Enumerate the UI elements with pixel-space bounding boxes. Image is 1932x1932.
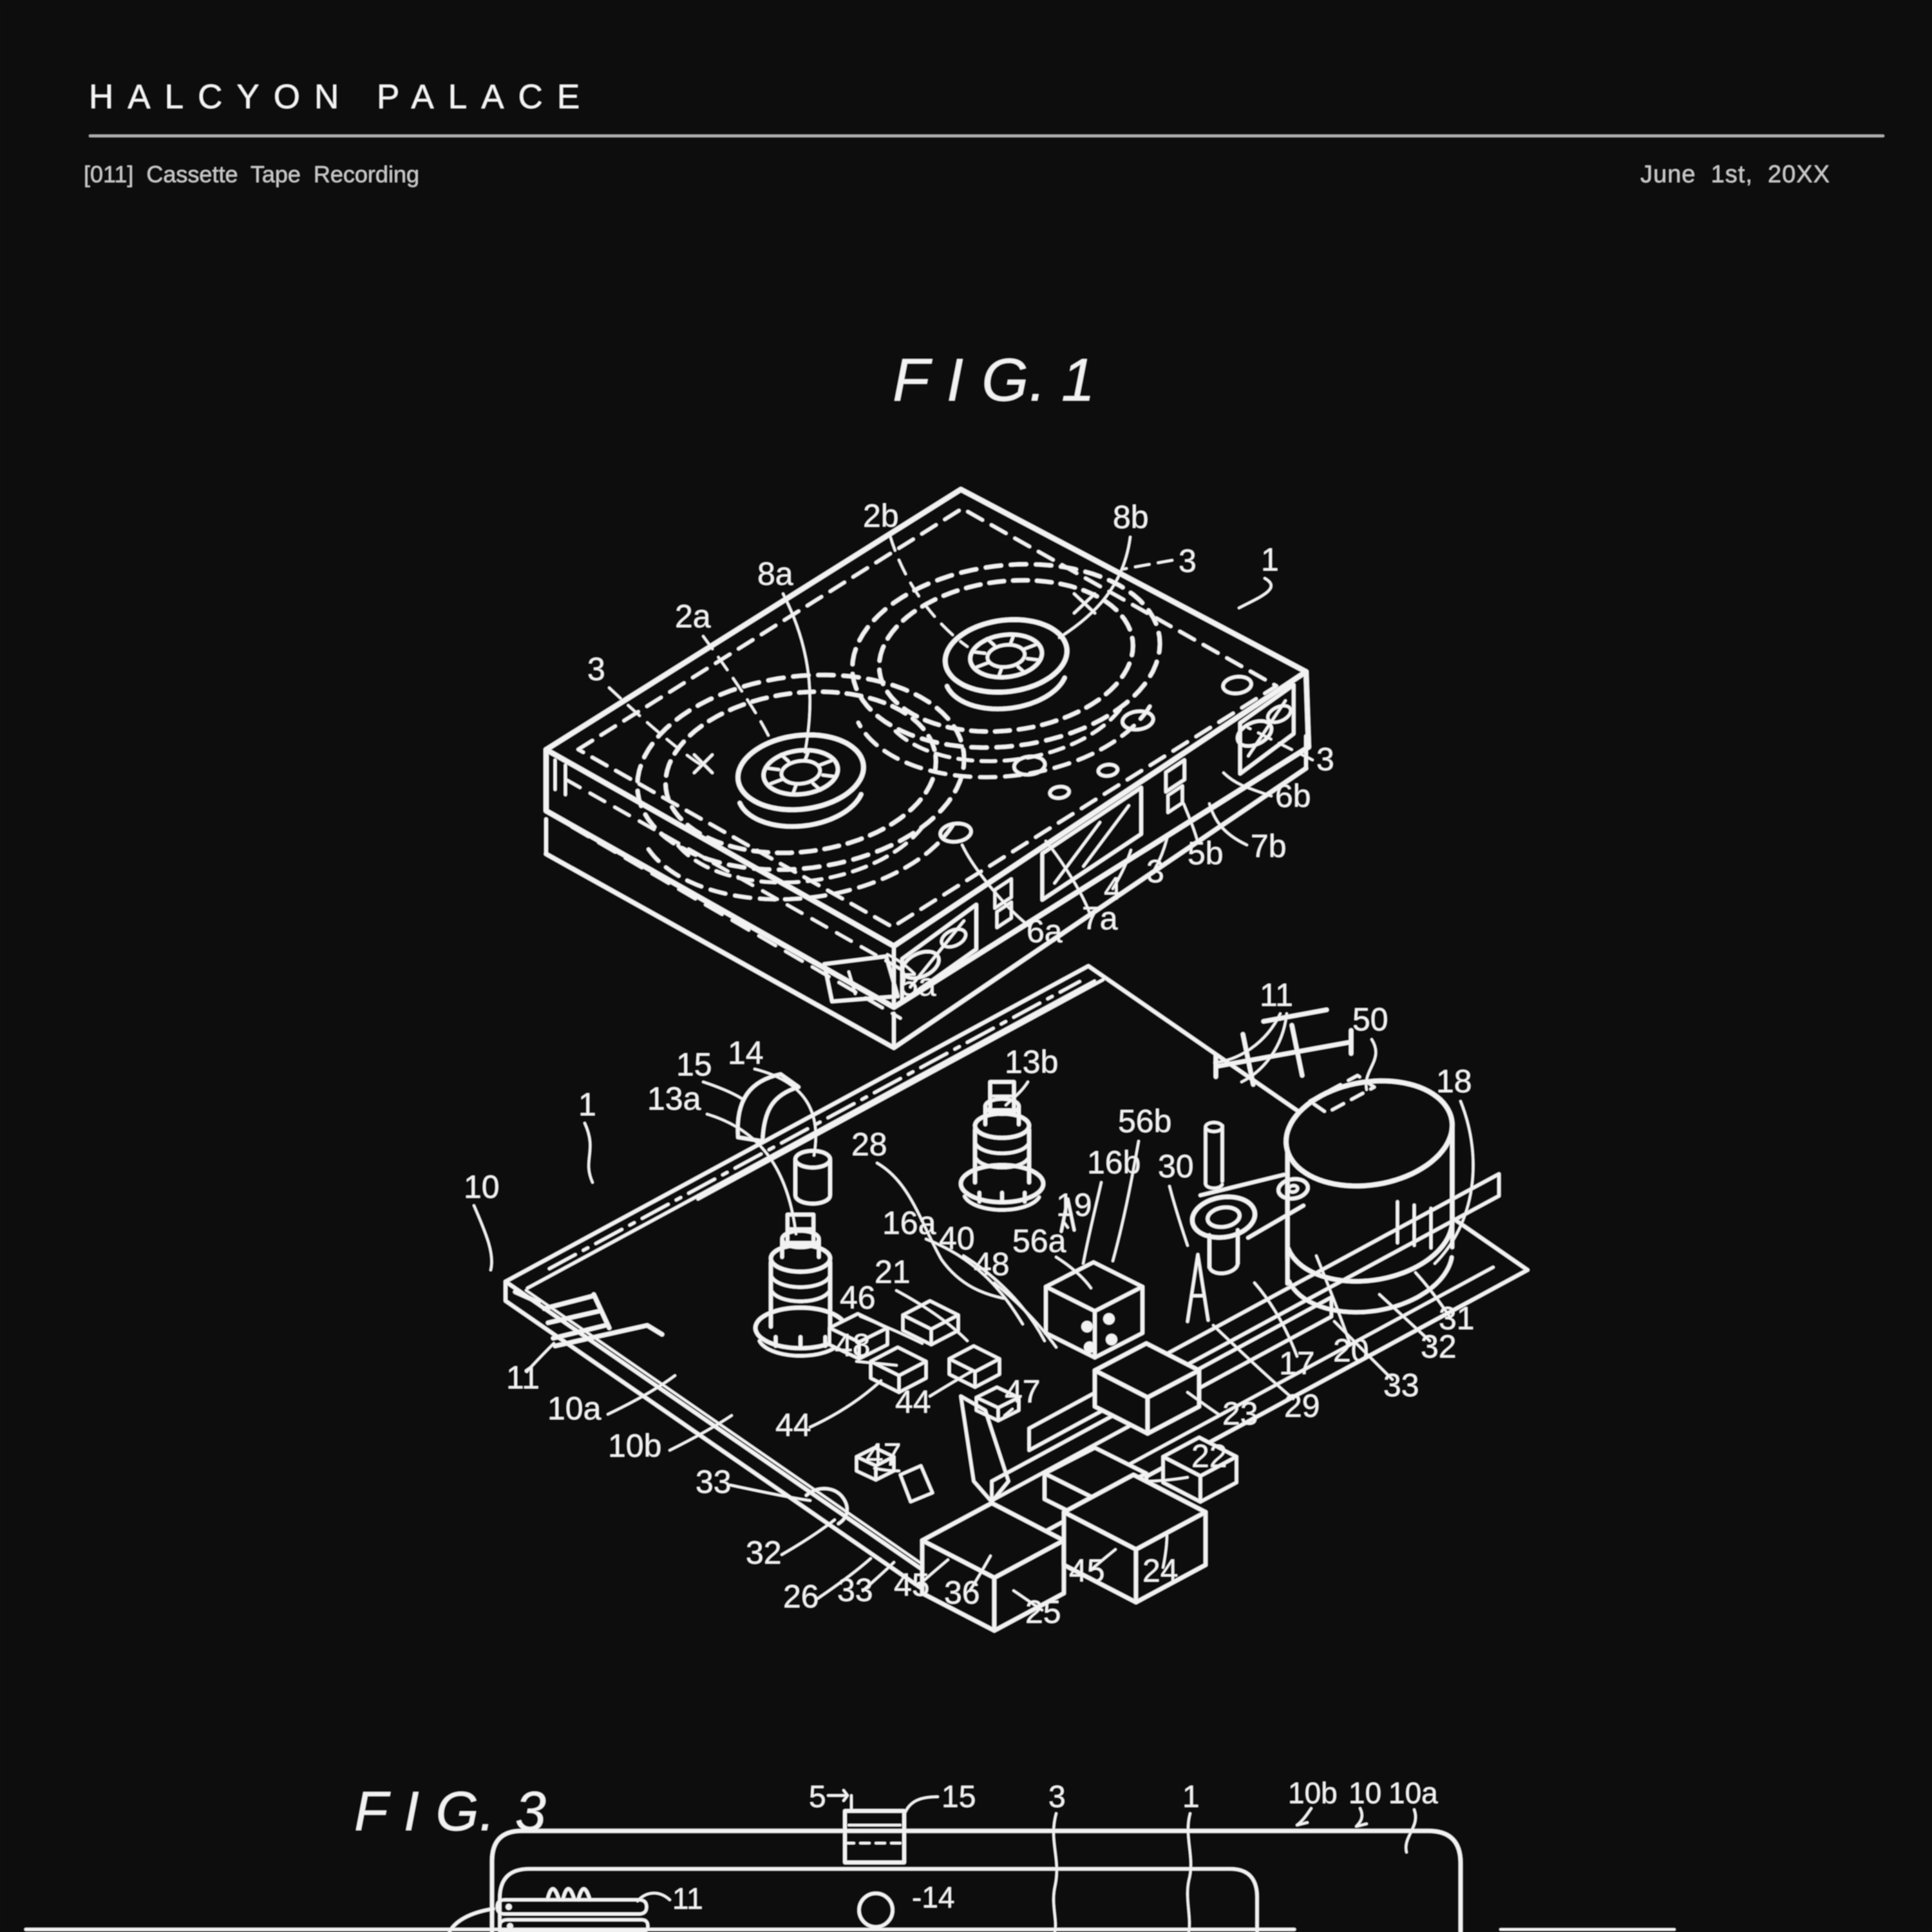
svg-text:33: 33 — [696, 1464, 732, 1500]
svg-text:3: 3 — [1316, 741, 1334, 777]
svg-text:18: 18 — [1436, 1063, 1472, 1099]
svg-text:22: 22 — [1191, 1438, 1227, 1474]
svg-text:HALCYON PALACE: HALCYON PALACE — [89, 78, 594, 116]
svg-text:1: 1 — [1261, 542, 1279, 578]
svg-text:48: 48 — [835, 1327, 871, 1363]
svg-text:17: 17 — [1279, 1345, 1315, 1381]
svg-text:[011] Cassette Tape Recordi: [011] Cassette Tape Recording — [84, 161, 419, 187]
svg-text:3: 3 — [587, 651, 605, 687]
svg-text:2b: 2b — [863, 498, 899, 534]
svg-text:10: 10 — [1349, 1776, 1381, 1810]
svg-text:50: 50 — [1352, 1001, 1388, 1037]
svg-text:3: 3 — [1146, 853, 1164, 889]
svg-text:6b: 6b — [1275, 778, 1311, 814]
svg-text:16a: 16a — [882, 1205, 936, 1241]
svg-text:26: 26 — [783, 1578, 819, 1615]
svg-text:7b: 7b — [1251, 828, 1287, 864]
svg-text:13a: 13a — [647, 1081, 701, 1117]
svg-text:46: 46 — [840, 1280, 876, 1316]
svg-text:19: 19 — [1056, 1187, 1092, 1223]
svg-text:5a: 5a — [900, 967, 936, 1003]
svg-text:10b: 10b — [608, 1428, 661, 1464]
svg-text:5b: 5b — [1188, 835, 1224, 871]
svg-text:47: 47 — [1005, 1374, 1041, 1410]
svg-text:44: 44 — [895, 1384, 931, 1420]
svg-text:56a: 56a — [1012, 1223, 1066, 1259]
svg-text:33: 33 — [1383, 1367, 1419, 1403]
svg-text:24: 24 — [1142, 1553, 1179, 1589]
svg-text:1: 1 — [1061, 346, 1095, 413]
svg-text:1: 1 — [1182, 1780, 1200, 1814]
svg-text:13b: 13b — [1005, 1044, 1058, 1080]
svg-text:25: 25 — [1025, 1594, 1061, 1630]
svg-text:10: 10 — [464, 1169, 500, 1205]
svg-text:2a: 2a — [675, 598, 711, 634]
svg-text:8b: 8b — [1113, 499, 1149, 535]
svg-text:-14: -14 — [912, 1880, 954, 1914]
svg-text:F I G.: F I G. — [354, 1781, 495, 1842]
svg-text:30: 30 — [1158, 1148, 1194, 1184]
svg-text:32: 32 — [1421, 1329, 1457, 1365]
svg-text:56b: 56b — [1118, 1103, 1171, 1139]
svg-text:F I G.: F I G. — [893, 346, 1046, 413]
svg-text:45: 45 — [894, 1567, 930, 1603]
svg-text:36: 36 — [944, 1575, 980, 1611]
svg-text:45: 45 — [1069, 1553, 1105, 1589]
svg-text:14: 14 — [728, 1035, 764, 1071]
svg-text:40: 40 — [939, 1220, 975, 1256]
svg-text:3: 3 — [1048, 1780, 1066, 1814]
svg-text:28: 28 — [851, 1126, 887, 1162]
svg-text:44: 44 — [775, 1407, 811, 1443]
svg-text:11: 11 — [1260, 977, 1293, 1013]
svg-text:10a: 10a — [1388, 1776, 1438, 1810]
svg-text:3: 3 — [515, 1781, 546, 1842]
svg-text:8a: 8a — [757, 556, 793, 592]
svg-text:5: 5 — [809, 1780, 826, 1814]
svg-text:23: 23 — [1222, 1396, 1258, 1432]
svg-text:15: 15 — [942, 1780, 976, 1814]
svg-text:11: 11 — [672, 1882, 703, 1915]
svg-text:47: 47 — [866, 1437, 902, 1473]
svg-text:1: 1 — [578, 1086, 596, 1122]
svg-text:16b: 16b — [1087, 1144, 1141, 1180]
svg-text:6a: 6a — [1027, 913, 1063, 949]
svg-text:June 1st, 20XX: June 1st, 20XX — [1640, 161, 1830, 188]
svg-text:48: 48 — [974, 1246, 1010, 1282]
svg-text:10b: 10b — [1288, 1776, 1338, 1810]
svg-text:15: 15 — [676, 1046, 712, 1083]
svg-text:32: 32 — [746, 1535, 782, 1571]
svg-text:10a: 10a — [547, 1390, 601, 1426]
svg-text:33: 33 — [837, 1572, 873, 1608]
svg-text:29: 29 — [1284, 1388, 1320, 1424]
svg-text:3: 3 — [1179, 543, 1197, 579]
svg-text:21: 21 — [875, 1254, 911, 1290]
